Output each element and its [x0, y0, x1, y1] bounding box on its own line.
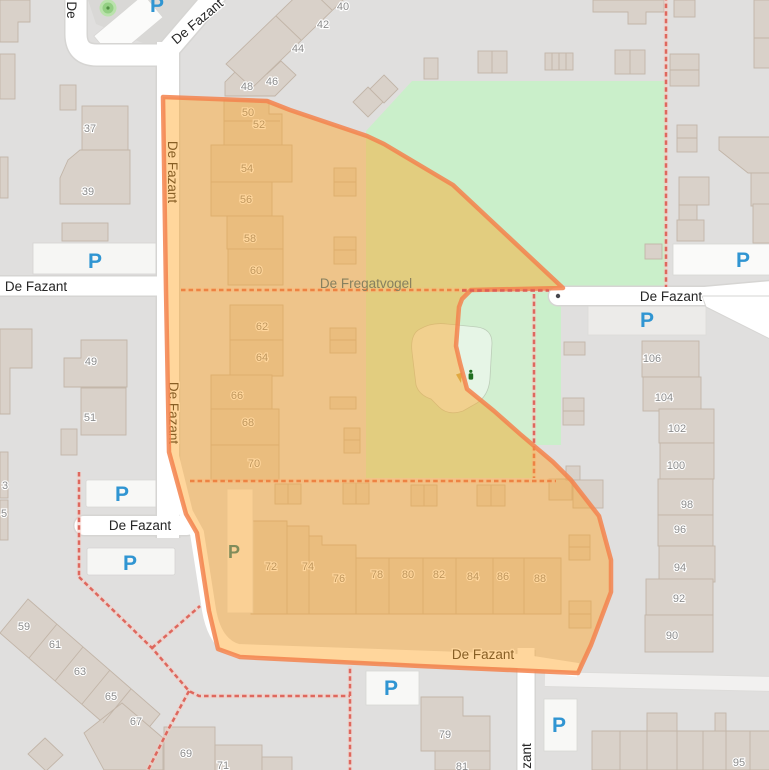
svg-text:De: De: [64, 1, 79, 18]
svg-text:P: P: [123, 552, 137, 575]
svg-text:39: 39: [82, 186, 94, 198]
svg-text:92: 92: [673, 593, 685, 605]
svg-text:104: 104: [655, 392, 673, 404]
svg-text:P: P: [115, 483, 129, 506]
svg-text:69: 69: [180, 748, 192, 760]
svg-text:5: 5: [1, 508, 7, 520]
svg-text:102: 102: [668, 423, 686, 435]
svg-text:P: P: [736, 249, 750, 272]
svg-text:De Fazant: De Fazant: [5, 279, 68, 294]
svg-text:59: 59: [18, 621, 30, 633]
svg-text:De Fazant: De Fazant: [109, 518, 172, 533]
svg-text:94: 94: [674, 562, 686, 574]
svg-text:51: 51: [84, 412, 96, 424]
svg-text:71: 71: [217, 760, 229, 770]
svg-text:P: P: [552, 714, 566, 737]
svg-text:42: 42: [317, 19, 329, 31]
svg-text:40: 40: [337, 1, 349, 13]
svg-text:3: 3: [2, 480, 8, 492]
svg-text:46: 46: [266, 76, 278, 88]
svg-text:49: 49: [85, 356, 97, 368]
svg-text:79: 79: [439, 729, 451, 741]
svg-text:48: 48: [241, 81, 253, 93]
svg-text:zant: zant: [519, 743, 534, 769]
svg-text:P: P: [88, 250, 102, 273]
svg-text:P: P: [150, 0, 164, 17]
svg-text:P: P: [640, 309, 654, 332]
svg-text:63: 63: [74, 666, 86, 678]
svg-text:37: 37: [84, 123, 96, 135]
svg-text:81: 81: [456, 761, 468, 770]
svg-text:67: 67: [130, 716, 142, 728]
svg-text:90: 90: [666, 630, 678, 642]
svg-text:44: 44: [292, 43, 304, 55]
svg-text:61: 61: [49, 639, 61, 651]
svg-text:65: 65: [105, 691, 117, 703]
svg-text:98: 98: [681, 499, 693, 511]
svg-text:P: P: [384, 677, 398, 700]
svg-text:95: 95: [733, 757, 745, 769]
svg-text:De Fregatvogel: De Fregatvogel: [320, 276, 412, 291]
svg-text:100: 100: [667, 460, 685, 472]
svg-text:96: 96: [674, 524, 686, 536]
svg-text:106: 106: [643, 353, 661, 365]
svg-text:De Fazant: De Fazant: [640, 289, 703, 304]
